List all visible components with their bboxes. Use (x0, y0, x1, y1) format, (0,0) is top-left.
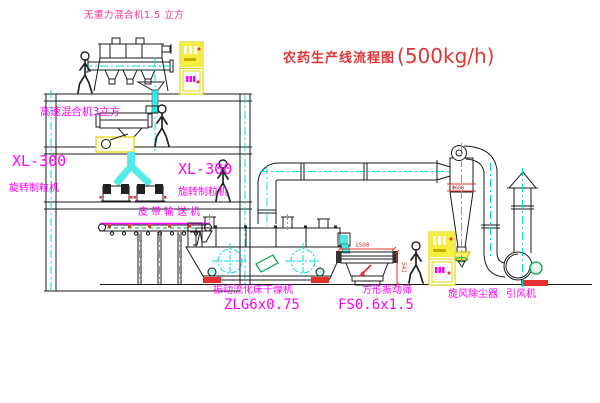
sieve-height-dim: 541 (400, 262, 407, 273)
title-text: 农药生产线流程图 (283, 47, 395, 66)
label-sieve-name: 方形振动筛 (362, 286, 412, 296)
label-granulator-right-name: 旋转制粒机 (178, 188, 228, 198)
cyclone-machine (450, 146, 497, 253)
label-dryer-model: ZLG6x0.75 (224, 298, 300, 312)
title-capacity: (500kg/h) (397, 44, 494, 68)
gravity-mixer-machine (85, 38, 173, 91)
label-sieve-model: FS0.6x1.5 (338, 298, 414, 312)
person-figure (409, 242, 423, 283)
exhaust-duct (258, 160, 450, 224)
page-title: 农药生产线流程图 (500kg/h) (283, 44, 495, 68)
process-flow-diagram: Φ600 (0, 0, 600, 403)
cyclone-dimension-text: Φ600 (452, 186, 464, 192)
control-cabinet-roof (180, 42, 203, 94)
sieve-flow-arrow (359, 265, 371, 277)
label-high-speed-mixer: 高速混合机3立方 (40, 107, 120, 118)
control-cabinet-ground (429, 232, 455, 285)
label-gravity-mixer: 无重力混合机1.5 立方 (84, 11, 184, 21)
label-belt-conveyor: 皮带输送机 (138, 208, 203, 218)
granulator-left (100, 184, 133, 201)
label-granulator-left-name: 旋转制粒机 (9, 184, 59, 194)
dryer-outlet (340, 235, 348, 244)
label-granulator-right-model: XL-300 (178, 162, 232, 177)
sieve-length-dim: 1500 (355, 242, 370, 249)
belt-conveyor-machine (99, 224, 213, 285)
label-dryer-name: 振动流化床干燥机 (213, 286, 293, 296)
high-speed-mixer-base (96, 134, 134, 152)
dryer-green-box (256, 255, 278, 272)
granulator-right (134, 184, 167, 201)
induced-draft-fan-machine (504, 252, 548, 286)
label-cyclone: 旋风除尘器 (448, 290, 498, 300)
label-granulator-left-model: XL-300 (12, 154, 66, 169)
sieve-dimensions: 1500 541 (338, 242, 407, 287)
label-fan: 引风机 (506, 290, 536, 300)
person-figure (78, 52, 92, 93)
y-feed-pipe (116, 152, 150, 184)
